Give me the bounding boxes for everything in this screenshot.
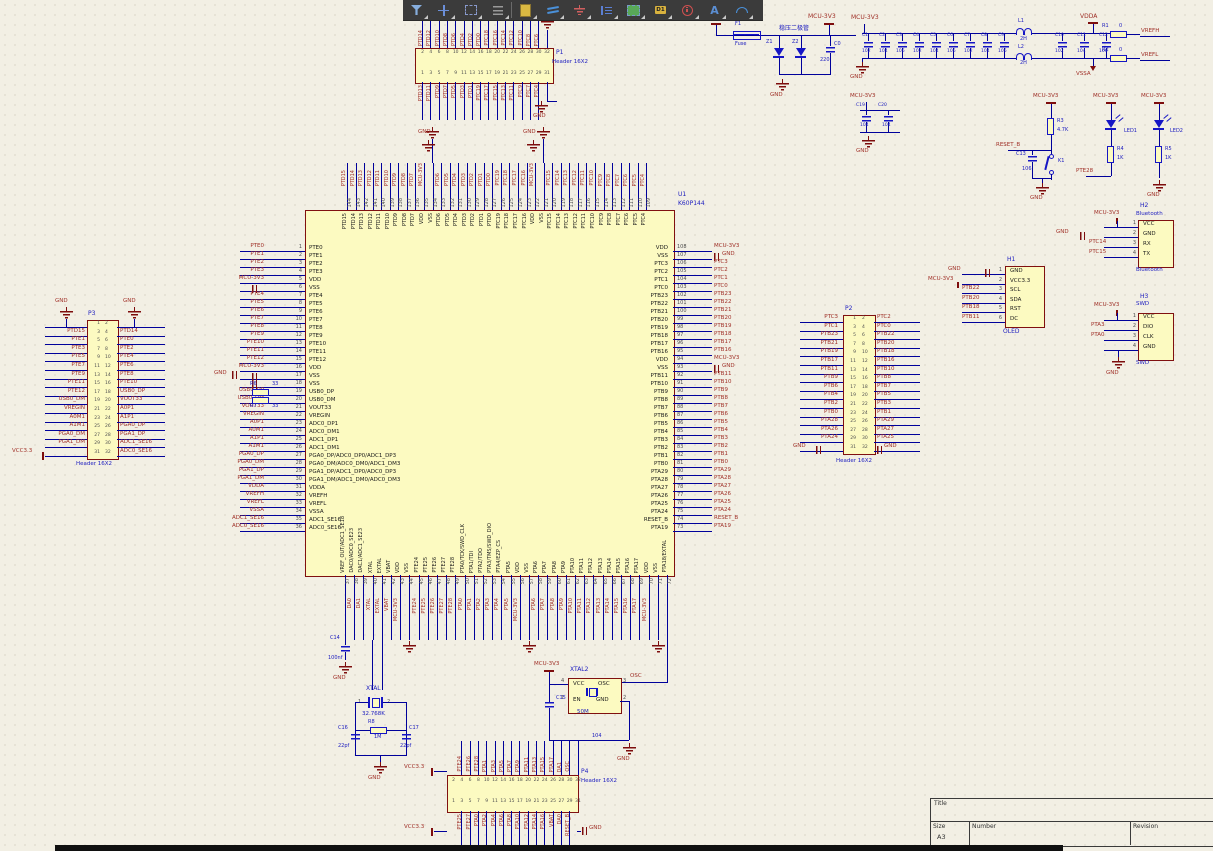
net-label[interactable]: PTA28 — [776, 418, 838, 424]
capacitor-symbol[interactable] — [983, 41, 992, 48]
net-label[interactable]: PTC9 — [599, 174, 604, 186]
net-label[interactable]: A1M1 — [176, 444, 264, 450]
net-label[interactable]: PTA10 — [516, 814, 521, 829]
gnd-bar[interactable] — [232, 371, 237, 379]
wire[interactable] — [902, 33, 903, 41]
net-label[interactable]: PTC11 — [510, 85, 515, 101]
wire[interactable] — [501, 575, 502, 640]
wire[interactable] — [549, 740, 629, 741]
net-label[interactable]: PTB21 — [714, 308, 731, 314]
net-label[interactable]: PTE12 — [176, 356, 264, 362]
net-label[interactable]: PTC7 — [527, 85, 532, 97]
net-label[interactable]: PTB19 — [776, 349, 838, 355]
net-label[interactable]: PTC18 — [485, 30, 490, 46]
net-label[interactable]: PTC18 — [504, 170, 509, 186]
net-label[interactable]: MCU-3V3 — [176, 276, 264, 282]
wire[interactable] — [529, 575, 530, 640]
wire[interactable] — [437, 575, 438, 640]
gnd-symbol[interactable] — [1036, 183, 1049, 195]
net-label[interactable]: PTE11 — [30, 380, 85, 386]
zener-diode[interactable] — [774, 48, 784, 56]
net-label[interactable]: PTC1 — [714, 276, 728, 282]
net-label[interactable]: DA0 — [558, 814, 563, 824]
net-label[interactable]: PTB1 — [877, 410, 891, 416]
capacitor-symbol[interactable] — [932, 41, 941, 48]
net-label[interactable]: PTA19 — [714, 524, 731, 530]
toolbar-place-wire-button[interactable] — [539, 0, 566, 20]
wire[interactable] — [658, 575, 659, 640]
net-label[interactable]: PTA15 — [615, 598, 620, 613]
net-label[interactable]: PTA13 — [533, 757, 538, 772]
net-label[interactable]: PTB6 — [714, 412, 728, 418]
net-label[interactable]: PTA0 — [475, 814, 480, 826]
wire[interactable] — [885, 33, 886, 41]
capacitor-symbol[interactable] — [545, 701, 554, 708]
wire[interactable] — [474, 575, 475, 640]
net-label[interactable]: PTB16 — [714, 348, 731, 354]
gnd-symbol[interactable] — [623, 743, 636, 755]
net-label[interactable]: PTC2 — [714, 268, 728, 274]
wire[interactable] — [387, 730, 406, 731]
gnd-symbol[interactable] — [1112, 357, 1125, 369]
net-label[interactable]: PTB0 — [714, 460, 728, 466]
net-label[interactable]: PTB10 — [714, 380, 731, 386]
capacitor-symbol[interactable] — [864, 41, 873, 48]
wire[interactable] — [1004, 58, 1016, 59]
net-label[interactable]: PTD14 — [419, 30, 424, 46]
wire[interactable] — [543, 139, 544, 163]
inductor[interactable] — [1016, 53, 1032, 60]
toolbar-place-part-button[interactable] — [512, 0, 539, 20]
wire[interactable] — [363, 575, 364, 640]
wire[interactable] — [547, 30, 548, 31]
net-label[interactable]: PTA13 — [597, 598, 602, 613]
capacitor-symbol[interactable] — [1058, 41, 1067, 48]
net-label[interactable]: MCU-3V3 — [808, 14, 836, 20]
gnd-symbol[interactable] — [535, 101, 548, 113]
wire[interactable] — [345, 575, 346, 640]
wire[interactable] — [1117, 221, 1118, 227]
net-label[interactable]: GND — [884, 444, 897, 450]
net-label[interactable]: PTC12 — [510, 30, 515, 46]
wire[interactable] — [1004, 33, 1005, 41]
wire[interactable] — [483, 575, 484, 640]
wire[interactable] — [801, 58, 802, 74]
net-label[interactable]: PTB9 — [714, 388, 728, 394]
gnd-symbol[interactable] — [1153, 180, 1166, 192]
net-label[interactable]: GND — [948, 267, 961, 273]
wire[interactable] — [1104, 227, 1138, 228]
net-label[interactable]: PTE1 — [30, 337, 85, 343]
net-label[interactable]: PGA0_DP — [120, 423, 145, 429]
wire[interactable] — [400, 575, 401, 640]
net-label[interactable]: DA1 — [357, 598, 362, 608]
wire[interactable] — [547, 82, 548, 102]
net-label[interactable]: GND — [1030, 196, 1043, 202]
net-label[interactable]: PTB7 — [877, 384, 891, 390]
toolbar-power-port-button[interactable] — [566, 0, 593, 20]
capacitor-symbol[interactable] — [1000, 41, 1009, 48]
gnd-symbol[interactable] — [862, 136, 875, 148]
wire[interactable] — [868, 33, 869, 41]
net-label[interactable]: VREGIN — [176, 412, 264, 418]
capacitor-symbol[interactable] — [884, 115, 893, 122]
net-label[interactable]: PTA26 — [714, 492, 731, 498]
wire[interactable] — [465, 575, 466, 640]
net-label[interactable]: PTA25 — [877, 435, 894, 441]
net-label[interactable]: DA0 — [348, 598, 353, 608]
net-label[interactable]: PTD13 — [359, 170, 364, 186]
net-label[interactable]: GND — [856, 149, 869, 155]
net-label[interactable]: GND — [617, 757, 630, 763]
net-label[interactable]: PTD0 — [477, 33, 482, 46]
wire[interactable] — [382, 575, 383, 640]
net-label[interactable]: PTE4 — [176, 292, 264, 298]
resistor-body[interactable] — [1110, 31, 1127, 38]
gnd-symbol[interactable] — [523, 641, 536, 653]
wire[interactable] — [547, 101, 557, 102]
net-label[interactable]: PTA5 — [505, 598, 510, 610]
net-label[interactable]: PTA27 — [714, 484, 731, 490]
net-label[interactable]: PTA16 — [541, 814, 546, 829]
gnd-symbol[interactable] — [652, 641, 665, 653]
net-label[interactable]: PTE9 — [176, 332, 264, 338]
fuse-body[interactable] — [733, 31, 761, 40]
net-label[interactable]: PTA0 — [459, 598, 464, 610]
net-label[interactable]: PTB22 — [962, 286, 979, 292]
net-label[interactable]: PTA9 — [560, 598, 565, 610]
net-label[interactable]: PTD0 — [487, 173, 492, 186]
capacitor-symbol[interactable] — [1080, 41, 1089, 48]
resistor-body[interactable] — [1110, 55, 1127, 62]
toolbar-annotate-button[interactable]: D1 — [647, 0, 674, 20]
gnd-symbol[interactable] — [422, 140, 435, 152]
net-label[interactable]: PTE24 — [413, 598, 418, 614]
net-label[interactable]: PTD11 — [376, 170, 381, 186]
net-label[interactable]: GND — [793, 444, 806, 450]
net-label[interactable]: VSSA — [1076, 72, 1091, 78]
wire[interactable] — [649, 575, 650, 640]
net-label[interactable]: PTD12 — [427, 30, 432, 46]
net-label[interactable]: ADC1_SE16 — [176, 516, 264, 522]
net-label[interactable]: PTA14 — [533, 814, 538, 829]
net-label[interactable]: VDDA — [1080, 14, 1097, 20]
net-label[interactable]: PTE3 — [30, 346, 85, 352]
toolbar-sheet-symbol-button[interactable] — [620, 0, 647, 20]
net-label[interactable]: PTD6 — [452, 33, 457, 46]
net-label[interactable]: PTD13 — [419, 85, 424, 101]
net-label[interactable]: PGA0_DP — [176, 452, 264, 458]
wire[interactable] — [428, 575, 429, 640]
switch-contact[interactable] — [1049, 154, 1054, 159]
wire[interactable] — [629, 701, 630, 740]
net-label[interactable]: OSC — [566, 761, 571, 772]
net-label[interactable]: PTD14 — [351, 170, 356, 186]
capacitor-symbol[interactable] — [966, 41, 975, 48]
resistor-body[interactable] — [252, 389, 269, 396]
gnd-symbol[interactable] — [403, 641, 416, 653]
net-label[interactable]: PTC15 — [547, 170, 552, 186]
net-label[interactable]: A0P1 — [176, 420, 264, 426]
net-label[interactable]: VBAT — [385, 598, 390, 611]
net-label[interactable]: PTE10 — [176, 340, 264, 346]
wire[interactable] — [962, 312, 1005, 313]
net-label[interactable]: MCU-3V3 — [643, 598, 648, 621]
net-label[interactable]: PTB11 — [962, 315, 979, 321]
net-label[interactable]: PTB11 — [776, 367, 838, 373]
net-label[interactable]: PTE5 — [30, 354, 85, 360]
capacitor-symbol[interactable] — [341, 645, 350, 652]
net-label[interactable]: PTB22 — [877, 332, 894, 338]
net-label[interactable]: GND — [123, 299, 136, 305]
net-label[interactable]: VREGIN — [30, 406, 85, 412]
net-label[interactable]: PTC3 — [776, 315, 838, 321]
net-label[interactable]: A0M1 — [30, 415, 85, 421]
wire[interactable] — [1111, 163, 1112, 176]
net-label[interactable]: PTD3 — [461, 85, 466, 98]
capacitor-symbol[interactable] — [1028, 155, 1037, 162]
schematic-canvas[interactable]: D1A Title Size A3 Number Revision U1K60P… — [0, 0, 1213, 851]
net-label[interactable]: PTA0 — [1091, 333, 1105, 339]
wire[interactable] — [391, 575, 392, 640]
wire[interactable] — [639, 575, 640, 640]
net-label[interactable]: PTE7 — [30, 363, 85, 369]
net-label[interactable]: PTD12 — [368, 170, 373, 186]
net-label[interactable]: PTA12 — [587, 598, 592, 613]
capacitor-symbol[interactable] — [862, 115, 871, 122]
wire[interactable] — [355, 755, 407, 756]
net-label[interactable]: GND — [722, 364, 735, 370]
net-label[interactable]: PTA9 — [516, 760, 521, 772]
toolbar-place-text-button[interactable]: A — [701, 0, 728, 20]
net-label[interactable]: GND — [722, 252, 735, 258]
net-label[interactable]: PTB23 — [776, 332, 838, 338]
net-label[interactable]: PTA17 — [550, 757, 555, 772]
net-label[interactable]: PTD9 — [436, 85, 441, 98]
net-label[interactable]: MCU-3V3 — [1141, 94, 1166, 100]
net-label[interactable]: PTE5 — [176, 300, 264, 306]
capacitor-symbol[interactable] — [881, 41, 890, 48]
net-label[interactable]: PTC15 — [1089, 250, 1106, 256]
wire[interactable] — [829, 25, 830, 36]
net-label[interactable]: PTB2 — [776, 401, 838, 407]
net-label[interactable]: GND — [589, 826, 602, 832]
wire[interactable] — [673, 531, 712, 532]
net-label[interactable]: PTA24 — [714, 508, 731, 514]
gnd-symbol[interactable] — [856, 62, 869, 74]
net-label[interactable]: PTE8 — [176, 324, 264, 330]
gnd-bar[interactable] — [877, 446, 882, 454]
capacitor-symbol[interactable] — [351, 733, 360, 740]
net-label[interactable]: PTA10 — [569, 598, 574, 613]
net-label[interactable]: RESET_B — [566, 814, 571, 836]
net-label[interactable]: MCU-3V3 — [928, 277, 953, 283]
net-label[interactable]: PGA1_DM — [30, 440, 85, 446]
wire[interactable] — [962, 322, 1005, 323]
net-label[interactable]: PTA28 — [714, 476, 731, 482]
net-label[interactable]: PTB18 — [877, 349, 894, 355]
net-label[interactable]: PTC16 — [494, 30, 499, 46]
wire[interactable] — [953, 33, 954, 41]
net-label[interactable]: PTC17 — [513, 170, 518, 186]
wire[interactable] — [779, 36, 780, 48]
inductor[interactable] — [1016, 28, 1032, 35]
net-label[interactable]: PTA2 — [477, 598, 482, 610]
net-label[interactable]: MCU-3V3 — [530, 163, 535, 186]
net-label[interactable]: PTA1 — [483, 760, 488, 772]
toolbar-selection-button[interactable] — [457, 0, 484, 20]
wire[interactable] — [864, 24, 865, 33]
wire[interactable] — [345, 652, 346, 660]
net-label[interactable]: VCC3.3 — [404, 825, 424, 831]
net-label[interactable]: PTB7 — [714, 404, 728, 410]
wire[interactable] — [1032, 58, 1110, 59]
net-label[interactable]: PTA4 — [495, 598, 500, 610]
net-label[interactable]: PTC2 — [877, 315, 891, 321]
wire[interactable] — [355, 730, 370, 731]
wire[interactable] — [1051, 104, 1052, 118]
net-label[interactable]: PTE27 — [440, 598, 445, 614]
wire[interactable] — [1104, 247, 1138, 248]
wire[interactable] — [409, 575, 410, 640]
net-label[interactable]: USB0_DM — [30, 397, 85, 403]
net-label[interactable]: PTE0 — [120, 337, 134, 343]
wire[interactable] — [520, 575, 521, 640]
wire[interactable] — [66, 319, 67, 327]
wire[interactable] — [1159, 163, 1160, 178]
net-label[interactable]: PTE2 — [120, 346, 134, 352]
net-label[interactable]: PTE12 — [30, 389, 85, 395]
net-label[interactable]: MCU-3V3 — [850, 94, 875, 100]
net-label[interactable]: MCU-3V3 — [419, 163, 424, 186]
wire[interactable] — [455, 575, 456, 640]
net-label[interactable]: PTD8 — [402, 173, 407, 186]
gnd-symbol[interactable] — [60, 307, 73, 319]
wire[interactable] — [936, 33, 937, 41]
wire[interactable] — [383, 702, 406, 703]
wire[interactable] — [117, 456, 165, 457]
toolbar-error-check-button[interactable] — [674, 0, 701, 20]
net-label[interactable]: PTE7 — [176, 316, 264, 322]
net-label[interactable]: GND — [214, 371, 227, 377]
wire[interactable] — [134, 319, 135, 327]
net-label[interactable]: MCU-3V3 — [394, 598, 399, 621]
net-label[interactable]: PTC4 — [641, 174, 646, 186]
net-label[interactable]: PTA16 — [624, 598, 629, 613]
wire[interactable] — [1104, 340, 1138, 341]
gnd-symbol[interactable] — [537, 127, 550, 139]
net-label[interactable]: PTA3 — [1091, 323, 1105, 329]
gnd-symbol[interactable] — [128, 307, 141, 319]
wire[interactable] — [779, 74, 831, 75]
net-label[interactable]: VREFL — [1141, 53, 1158, 59]
net-label[interactable]: MCU-3V3 — [176, 364, 264, 370]
net-label[interactable]: VCC3.3 — [12, 449, 32, 455]
wire[interactable] — [547, 30, 548, 48]
net-label[interactable]: PTB10 — [877, 367, 894, 373]
wire[interactable] — [800, 442, 843, 443]
net-label[interactable]: PTC9 — [519, 85, 524, 97]
wire[interactable] — [1086, 176, 1111, 177]
net-label[interactable]: GND — [770, 93, 783, 99]
net-label[interactable]: PTE24 — [458, 756, 463, 772]
net-label[interactable]: PTB22 — [714, 300, 731, 306]
wire[interactable] — [549, 708, 550, 740]
net-label[interactable]: VSSA — [176, 508, 264, 514]
net-label[interactable]: PTE9 — [30, 372, 85, 378]
wire[interactable] — [603, 575, 604, 640]
net-label[interactable]: GND — [333, 676, 346, 682]
net-label[interactable]: PGA1_DP — [176, 468, 264, 474]
gnd-bar[interactable] — [816, 446, 821, 454]
wire[interactable] — [1140, 36, 1170, 37]
wire[interactable] — [860, 132, 900, 133]
net-label[interactable]: PTD9 — [393, 173, 398, 186]
wire[interactable] — [1140, 60, 1170, 61]
net-label[interactable]: PTB18 — [962, 305, 979, 311]
net-label[interactable]: DA1 — [558, 762, 563, 772]
net-label[interactable]: MCU-3V3 — [1093, 94, 1118, 100]
crystal-body[interactable] — [589, 688, 597, 697]
power-bar[interactable] — [42, 452, 44, 460]
wire[interactable] — [1104, 237, 1138, 238]
net-label[interactable]: PTC5 — [633, 174, 638, 186]
net-label[interactable]: VBAT — [550, 814, 555, 827]
wire[interactable] — [240, 531, 305, 532]
wire[interactable] — [962, 293, 1005, 294]
wire[interactable] — [577, 831, 581, 832]
net-label[interactable]: PTC6 — [624, 174, 629, 186]
net-label[interactable]: PTC3 — [714, 260, 728, 266]
net-label[interactable]: PTC8 — [527, 34, 532, 46]
net-label[interactable]: PTA14 — [606, 598, 611, 613]
wire[interactable] — [1117, 313, 1118, 320]
net-label[interactable]: PTC16 — [522, 170, 527, 186]
net-label[interactable]: PTA25 — [714, 500, 731, 506]
net-label[interactable]: VCC3.3 — [404, 765, 424, 771]
resistor-body[interactable] — [1047, 118, 1054, 135]
net-label[interactable]: PTA1 — [468, 598, 473, 610]
net-label[interactable]: PTB9 — [776, 375, 838, 381]
net-label[interactable]: GND — [55, 299, 68, 305]
net-label[interactable]: PTB3 — [877, 401, 891, 407]
net-label[interactable]: PTC11 — [581, 170, 586, 186]
resistor-body[interactable] — [370, 727, 387, 734]
net-label[interactable]: PTA7 — [541, 598, 546, 610]
net-label[interactable]: PTE26 — [467, 756, 472, 772]
net-label[interactable]: PTC14 — [1089, 240, 1106, 246]
net-label[interactable]: USB0_DP — [120, 389, 145, 395]
net-label[interactable]: PTE2 — [176, 260, 264, 266]
net-label[interactable]: PTB5 — [877, 392, 891, 398]
net-label[interactable]: EXTAL — [376, 598, 381, 613]
capacitor-symbol[interactable] — [949, 41, 958, 48]
wire[interactable] — [1051, 135, 1052, 150]
net-label[interactable]: MCU-3V3 — [851, 15, 879, 21]
net-label[interactable]: PTE25 — [422, 598, 427, 614]
wire[interactable] — [1104, 257, 1138, 258]
net-label[interactable]: PTB8 — [877, 375, 891, 381]
wire[interactable] — [612, 575, 613, 640]
net-label[interactable]: PTC10 — [519, 30, 524, 46]
net-label[interactable]: GND — [368, 776, 381, 782]
wire[interactable] — [1032, 162, 1033, 178]
net-label[interactable]: PTB20 — [962, 296, 979, 302]
zener-diode[interactable] — [796, 48, 806, 56]
net-label[interactable]: PTA15 — [541, 757, 546, 772]
net-label[interactable]: MCU-3V3 — [534, 662, 559, 668]
net-label[interactable]: PTB20 — [714, 316, 731, 322]
